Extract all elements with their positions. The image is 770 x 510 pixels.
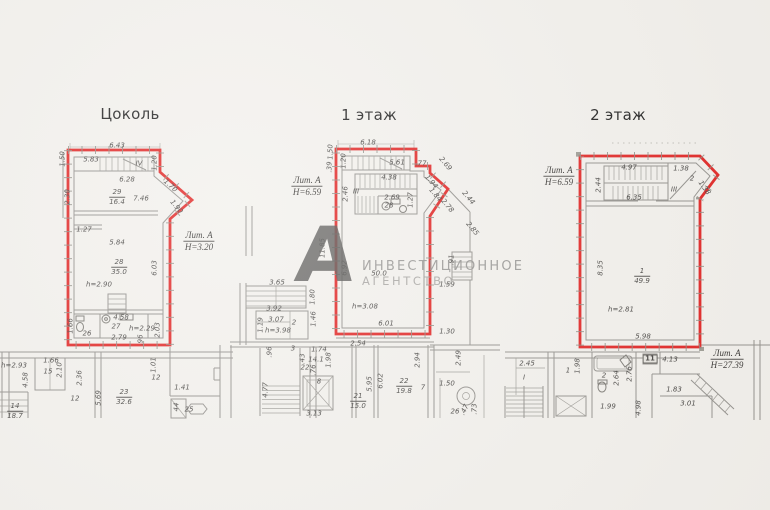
dimension-label: 1.98 bbox=[575, 358, 582, 374]
room-area-label: 2916.4 bbox=[109, 189, 125, 206]
room-area-label: 1418.7 bbox=[7, 403, 23, 420]
plan-title-floor1: 1 этаж bbox=[341, 106, 397, 124]
dimension-label: .96 bbox=[267, 346, 274, 357]
dimension-label: 1.50 bbox=[328, 144, 335, 160]
dimension-label: 15 bbox=[44, 369, 53, 376]
dimension-label: 5.98 bbox=[635, 334, 651, 341]
dimension-label: 1.50 bbox=[439, 381, 455, 388]
dimension-label: 11 bbox=[643, 355, 658, 364]
dimension-label: 1.98 bbox=[326, 352, 333, 368]
dimension-label: III bbox=[353, 189, 359, 196]
dimension-label: 1.66 bbox=[68, 318, 75, 334]
dimension-label: h=3.98 bbox=[265, 328, 291, 335]
floor-height-label: Лит. АН=6.59 bbox=[543, 166, 574, 187]
floor-height-label: Лит. АН=3.20 bbox=[183, 231, 214, 252]
watermark-line1: ИНВЕСТИЦИОННОЕ bbox=[362, 259, 524, 274]
dimension-label: 1 bbox=[566, 368, 570, 375]
dimension-label: III bbox=[671, 187, 677, 194]
dimension-label: 1.83 bbox=[666, 387, 682, 394]
dimension-label: I bbox=[523, 375, 525, 382]
dimension-label: .76 bbox=[311, 364, 318, 375]
dimension-label: 6.02 bbox=[378, 373, 385, 389]
dimension-label: 8 bbox=[317, 379, 321, 386]
dimension-label: .39 bbox=[327, 161, 334, 172]
dimension-label: 4.77 bbox=[263, 382, 270, 398]
dimension-label: 2.64 bbox=[614, 370, 621, 386]
dimension-label: 5.95 bbox=[367, 376, 374, 392]
dimension-label: 2.36 bbox=[77, 370, 84, 386]
dimension-label: 4.58 bbox=[23, 372, 30, 388]
dimension-label: 6.03 bbox=[152, 260, 159, 276]
dimension-label: 1.30 bbox=[439, 329, 455, 336]
dimension-label: .77 bbox=[415, 161, 426, 168]
dimension-label: 6.18 bbox=[360, 140, 376, 147]
dimension-label: 1.19 bbox=[258, 317, 265, 333]
dimension-label: 1.41 bbox=[174, 385, 190, 392]
floor-height-label: Лит. АН=27.39 bbox=[711, 349, 744, 370]
dimension-label: 2.79 bbox=[111, 335, 127, 342]
dimension-label: 2 bbox=[602, 373, 606, 380]
dimension-label: 3.92 bbox=[266, 306, 282, 313]
floor-height-label: Лит. АН=6.59 bbox=[291, 176, 322, 197]
dimension-label: 1.27 bbox=[408, 192, 415, 208]
dimension-label: 14.1 bbox=[308, 357, 324, 364]
dimension-label: 7.46 bbox=[133, 196, 149, 203]
dimension-label: 2 bbox=[292, 320, 296, 327]
dimension-label: 1.01 bbox=[151, 357, 158, 373]
dimension-label: 22 bbox=[301, 365, 310, 372]
dimension-label: 2.44 bbox=[596, 177, 603, 193]
dimension-label: 6.28 bbox=[119, 177, 135, 184]
dimension-label: h=2.90 bbox=[86, 282, 112, 289]
dimension-label: 5.61 bbox=[389, 160, 405, 167]
dimension-label: 1.99 bbox=[600, 404, 616, 411]
dimension-label: h=3.08 bbox=[352, 304, 378, 311]
dimension-label: 3.65 bbox=[269, 280, 285, 287]
floorplan-sheet: Цоколь 1 этаж 2 этаж 6.431.505.83IV1.206… bbox=[0, 0, 770, 510]
dimension-label: 7 bbox=[421, 385, 425, 392]
dimension-label: 1.20 bbox=[152, 155, 159, 171]
dimension-label: 2.45 bbox=[519, 361, 535, 368]
dimension-label: 1.50 bbox=[60, 151, 67, 167]
dimension-label: 12 bbox=[152, 375, 161, 382]
dimension-label: 1.46 bbox=[311, 311, 318, 327]
dimension-label: 2 bbox=[690, 176, 694, 183]
dimension-label: 3.01 bbox=[680, 401, 696, 408]
dimension-label: 1.20 bbox=[341, 153, 348, 169]
dimension-label: 2.94 bbox=[415, 352, 422, 368]
dimension-label: .96 bbox=[138, 334, 145, 345]
dimension-label: 2.03 bbox=[155, 322, 162, 338]
dimension-label: 44 bbox=[174, 403, 181, 412]
dimension-label: 4.97 bbox=[621, 165, 637, 172]
plan-title-floor2: 2 этаж bbox=[590, 106, 646, 124]
dimension-label: 25 bbox=[185, 407, 194, 414]
dimension-label: .73 bbox=[472, 403, 479, 414]
plan-title-basement: Цоколь bbox=[100, 105, 159, 123]
dimension-label: 6.01 bbox=[378, 321, 394, 328]
dimension-label: IV bbox=[136, 161, 143, 168]
dimension-label: 26 bbox=[83, 331, 92, 338]
dimension-label: 27 bbox=[112, 324, 121, 331]
room-area-label: 2219.8 bbox=[396, 378, 412, 395]
dimension-label: 6.35 bbox=[626, 195, 642, 202]
dimension-label: h=2.29 bbox=[129, 326, 155, 333]
dimension-label: 5.84 bbox=[109, 240, 125, 247]
dimension-label: 8.35 bbox=[598, 260, 605, 276]
room-area-label: 2115.0 bbox=[350, 393, 366, 410]
dimension-label: 5.83 bbox=[83, 157, 99, 164]
dimension-label: 2.69 bbox=[384, 195, 400, 202]
dimension-label: 4.58 bbox=[113, 315, 129, 322]
dimension-label: 2.10 bbox=[57, 362, 64, 378]
room-area-label: 2835.0 bbox=[111, 259, 127, 276]
dimension-label: 4.38 bbox=[381, 175, 397, 182]
dimension-label: 12 bbox=[71, 396, 80, 403]
dimension-label: 2.76 bbox=[627, 366, 634, 382]
floorplan-linework bbox=[0, 0, 770, 510]
agency-logo-letter: А bbox=[292, 218, 366, 292]
dimension-label: 3.07 bbox=[268, 317, 284, 324]
dimension-label: 3.13 bbox=[306, 411, 322, 418]
dimension-label: 2.46 bbox=[343, 186, 350, 202]
dimension-label: 2.49 bbox=[456, 350, 463, 366]
dimension-label: 6.43 bbox=[109, 143, 125, 150]
dimension-label: h=2.81 bbox=[608, 307, 634, 314]
dimension-label: 2.30 bbox=[65, 189, 72, 205]
dimension-label: 4.98 bbox=[636, 400, 643, 416]
dimension-label: h=2.93 bbox=[1, 363, 27, 370]
dimension-label: 4.13 bbox=[662, 357, 678, 364]
watermark-line2: АГЕНТСТВО bbox=[362, 274, 455, 288]
dimension-label: 2.54 bbox=[350, 341, 366, 348]
dimension-label: 28 bbox=[385, 203, 394, 210]
room-area-label: 149.9 bbox=[634, 268, 650, 285]
dimension-label: 1.38 bbox=[673, 166, 689, 173]
room-area-label: 2332.6 bbox=[116, 389, 132, 406]
dimension-label: 3 bbox=[291, 346, 295, 353]
dimension-label: 5.69 bbox=[96, 390, 103, 406]
basement-plan-lines bbox=[0, 143, 252, 418]
dimension-label: 1.27 bbox=[76, 227, 92, 234]
